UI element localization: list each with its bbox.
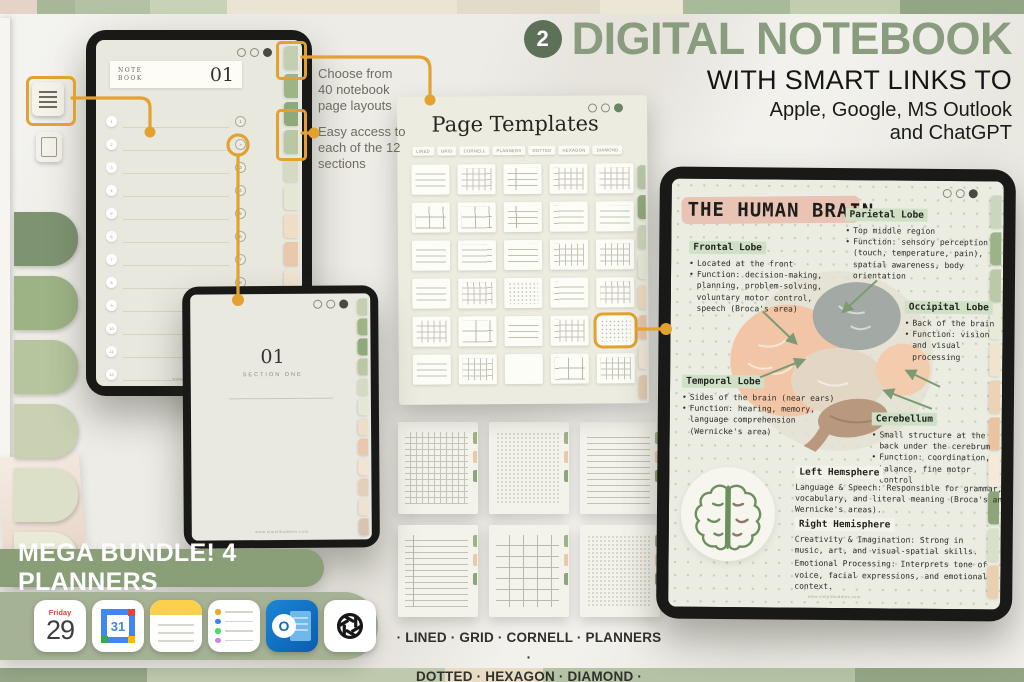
- side-tab[interactable]: [639, 375, 647, 399]
- side-tab[interactable]: [637, 165, 645, 189]
- page-templates-panel: Page Templates LinedGridCornellPlannersD…: [397, 95, 649, 405]
- side-tab[interactable]: [358, 378, 368, 395]
- side-tab[interactable]: [638, 195, 646, 219]
- settings-icon[interactable]: [250, 48, 259, 57]
- section-number: 01: [191, 345, 355, 368]
- side-tab[interactable]: [358, 418, 368, 435]
- templates-title: Page Templates: [397, 111, 633, 137]
- watermark: www.simplibuddies.com: [668, 593, 1000, 601]
- side-tab[interactable]: [359, 498, 369, 515]
- template-filter-button[interactable]: Cornell: [460, 146, 490, 155]
- page-preview-dots: [580, 525, 660, 617]
- template-thumbnail-lined[interactable]: [413, 355, 451, 385]
- share-icon[interactable]: [943, 189, 952, 198]
- page-previews: [398, 422, 660, 617]
- template-thumbnail-boxes[interactable]: [412, 203, 450, 233]
- layout-tab-stack: [12, 70, 90, 570]
- template-thumbnail-lined[interactable]: [550, 202, 588, 232]
- template-thumbnail-lined[interactable]: [412, 279, 450, 309]
- poster-title: DIGITAL NOTEBOOK: [572, 16, 1012, 61]
- section-divider: [229, 398, 333, 400]
- template-keywords: · LINED · GRID · CORNELL · PLANNERS · DO…: [396, 628, 662, 682]
- side-tab[interactable]: [638, 255, 646, 279]
- notebook-row[interactable]: 33: [106, 156, 246, 179]
- template-thumbnail-grid[interactable]: [596, 239, 634, 269]
- side-tab[interactable]: [358, 398, 368, 415]
- template-filter-button[interactable]: Diamond: [593, 145, 623, 154]
- watermark: www.simplibuddies.com: [192, 528, 372, 534]
- side-tab[interactable]: [284, 242, 298, 266]
- panel-side-tabs: [637, 165, 647, 399]
- side-tab[interactable]: [638, 285, 646, 309]
- notebook-row[interactable]: 2»: [106, 133, 246, 156]
- template-thumbnail-boxes[interactable]: [551, 354, 589, 384]
- template-filter-button[interactable]: Grid: [437, 146, 457, 155]
- template-thumbnail-lined[interactable]: [412, 241, 450, 271]
- template-thumbnail-grid[interactable]: [595, 163, 633, 193]
- template-thumbnail-lined[interactable]: [550, 278, 588, 308]
- template-thumbnail-lined[interactable]: [504, 316, 542, 346]
- highlight-top-tab: [276, 41, 307, 80]
- side-tab[interactable]: [358, 478, 368, 495]
- brain-notes-tablet: THE HUMAN BRAIN Parietal Lobe: [656, 166, 1016, 621]
- template-thumbnail-dots[interactable]: [504, 278, 542, 308]
- section-title: SECTION ONE: [191, 371, 355, 378]
- decor-strip-top: [0, 0, 1024, 14]
- side-tab[interactable]: [357, 318, 367, 335]
- template-thumbnail-grid[interactable]: [596, 277, 634, 307]
- right-hemisphere-note: Right Hemisphere Creativity & Imaginatio…: [794, 514, 995, 594]
- template-thumbnail-blank[interactable]: [505, 354, 543, 384]
- template-thumbnail-grid[interactable]: [597, 353, 635, 383]
- side-tab[interactable]: [358, 458, 368, 475]
- occipital-label: Occipital Lobe: [905, 301, 993, 315]
- cerebellum-label: Cerebellum: [872, 412, 937, 426]
- section-side-tabs: [357, 298, 369, 535]
- right-hemisphere-label: Right Hemisphere: [795, 518, 895, 532]
- apple-calendar-icon[interactable]: Friday 29: [34, 600, 86, 652]
- side-tab[interactable]: [638, 315, 646, 339]
- share-icon[interactable]: [237, 48, 246, 57]
- template-grid: [411, 163, 635, 385]
- template-thumbnail-grid[interactable]: [412, 317, 450, 347]
- settings-icon[interactable]: [956, 189, 965, 198]
- mega-bundle-banner: MEGA BUNDLE! 4 PLANNERS: [0, 549, 324, 587]
- side-tab[interactable]: [284, 158, 298, 182]
- number-badge: 2: [524, 20, 562, 58]
- template-thumbnail-cornell[interactable]: [503, 164, 541, 194]
- app-dock: Friday 29 31 O: [0, 592, 378, 660]
- template-filter-button[interactable]: Hexagon: [559, 146, 590, 155]
- close-icon[interactable]: [969, 189, 978, 198]
- side-tab[interactable]: [639, 345, 647, 369]
- template-thumbnail-lined[interactable]: [411, 165, 449, 195]
- notebook-row[interactable]: 77: [106, 248, 246, 271]
- notebook-row[interactable]: 55: [106, 202, 246, 225]
- template-filter-button[interactable]: Lined: [412, 147, 434, 156]
- side-tab[interactable]: [14, 468, 78, 522]
- side-tab[interactable]: [284, 186, 298, 210]
- callout-sections: Easy access to each of the 12 sections: [318, 124, 405, 172]
- apple-notes-icon[interactable]: [150, 600, 202, 652]
- share-icon[interactable]: [313, 300, 322, 309]
- template-thumbnail-lined[interactable]: [504, 240, 542, 270]
- apple-reminders-icon[interactable]: [208, 600, 260, 652]
- google-calendar-icon[interactable]: 31: [92, 600, 144, 652]
- settings-icon[interactable]: [326, 300, 335, 309]
- notebook-row[interactable]: 11: [106, 110, 246, 133]
- side-tab[interactable]: [357, 338, 367, 355]
- chatgpt-icon[interactable]: [324, 600, 376, 652]
- side-tab[interactable]: [14, 340, 78, 394]
- ms-outlook-icon[interactable]: O: [266, 600, 318, 652]
- page-preview-boxes: [489, 525, 569, 617]
- highlight-layout-icon: [26, 76, 76, 126]
- page-preview-grid: [398, 422, 478, 514]
- side-tab[interactable]: [14, 404, 78, 458]
- close-icon[interactable]: [339, 300, 348, 309]
- template-thumbnail-grid[interactable]: [550, 240, 588, 270]
- product-poster: NOTE BOOK 01 112»33445566778899101011111…: [0, 0, 1024, 682]
- blank-layout-icon[interactable]: [36, 132, 62, 162]
- section-screen: 01 SECTION ONE www.simplibuddies.com: [190, 293, 372, 540]
- notebook-cover-header: NOTE BOOK 01: [110, 61, 242, 88]
- template-filter-button[interactable]: Planners: [493, 146, 526, 155]
- brain-hemispheres-icon: [681, 467, 776, 562]
- template-thumbnail-grid[interactable]: [459, 354, 497, 384]
- page-preview-cornell: [398, 525, 478, 617]
- brain-notes-screen: THE HUMAN BRAIN Parietal Lobe: [668, 179, 1004, 610]
- section-tablet: 01 SECTION ONE www.simplibuddies.com: [182, 285, 380, 548]
- temporal-lobe-note: Temporal Lobe •Sides of the brain (near …: [682, 371, 841, 438]
- occipital-lobe-note: Occipital Lobe •Back of the brain •Funct…: [904, 297, 997, 364]
- callout-layouts: Choose from 40 notebook page layouts: [318, 66, 392, 114]
- toolbar-icons: [237, 48, 272, 57]
- side-tab[interactable]: [358, 438, 368, 455]
- page-preview-lined: [580, 422, 660, 514]
- template-filters: LinedGridCornellPlannersDottedHexagonDia…: [407, 145, 627, 156]
- poster-subtitle: WITH SMART LINKS TO: [472, 65, 1012, 96]
- page-preview-dots: [489, 422, 569, 514]
- temporal-label: Temporal Lobe: [682, 375, 764, 389]
- template-thumbnail-lined[interactable]: [596, 201, 634, 231]
- toolbar-icons: [943, 189, 978, 198]
- frontal-lobe-note: Frontal Lobe •Located at the front •Func…: [689, 237, 842, 315]
- notebook-page-number: 01: [210, 64, 234, 86]
- side-tab[interactable]: [358, 358, 368, 375]
- template-thumbnail-cornell[interactable]: [504, 202, 542, 232]
- notebook-row[interactable]: 66: [106, 225, 246, 248]
- highlight-section-tab: [276, 109, 307, 161]
- notebook-label: NOTE BOOK: [118, 67, 143, 82]
- template-thumbnail-dots[interactable]: [596, 315, 634, 345]
- template-thumbnail-grid[interactable]: [458, 278, 496, 308]
- toolbar-icons: [313, 300, 348, 309]
- close-icon[interactable]: [263, 48, 272, 57]
- parietal-label: Parietal Lobe: [846, 208, 928, 222]
- template-thumbnail-boxes[interactable]: [458, 316, 496, 346]
- side-tab[interactable]: [284, 214, 298, 238]
- template-filter-button[interactable]: Dotted: [528, 146, 555, 155]
- left-hemisphere-note: Left Hemsphere Language & Speech: Respon…: [795, 462, 1004, 517]
- notebook-row[interactable]: 44: [106, 179, 246, 202]
- template-thumbnail-grid[interactable]: [550, 316, 588, 346]
- side-tab[interactable]: [14, 276, 78, 330]
- template-thumbnail-grid[interactable]: [457, 164, 495, 194]
- side-tab[interactable]: [14, 212, 78, 266]
- template-thumbnail-grid[interactable]: [549, 164, 587, 194]
- template-thumbnail-lined[interactable]: [458, 240, 496, 270]
- parietal-lobe-note: Parietal Lobe •Top middle region •Functi…: [845, 204, 1001, 282]
- side-tab[interactable]: [357, 298, 367, 315]
- left-hemisphere-label: Left Hemsphere: [795, 466, 883, 480]
- frontal-label: Frontal Lobe: [689, 241, 766, 255]
- template-thumbnail-boxes[interactable]: [458, 202, 496, 232]
- side-tab[interactable]: [638, 225, 646, 249]
